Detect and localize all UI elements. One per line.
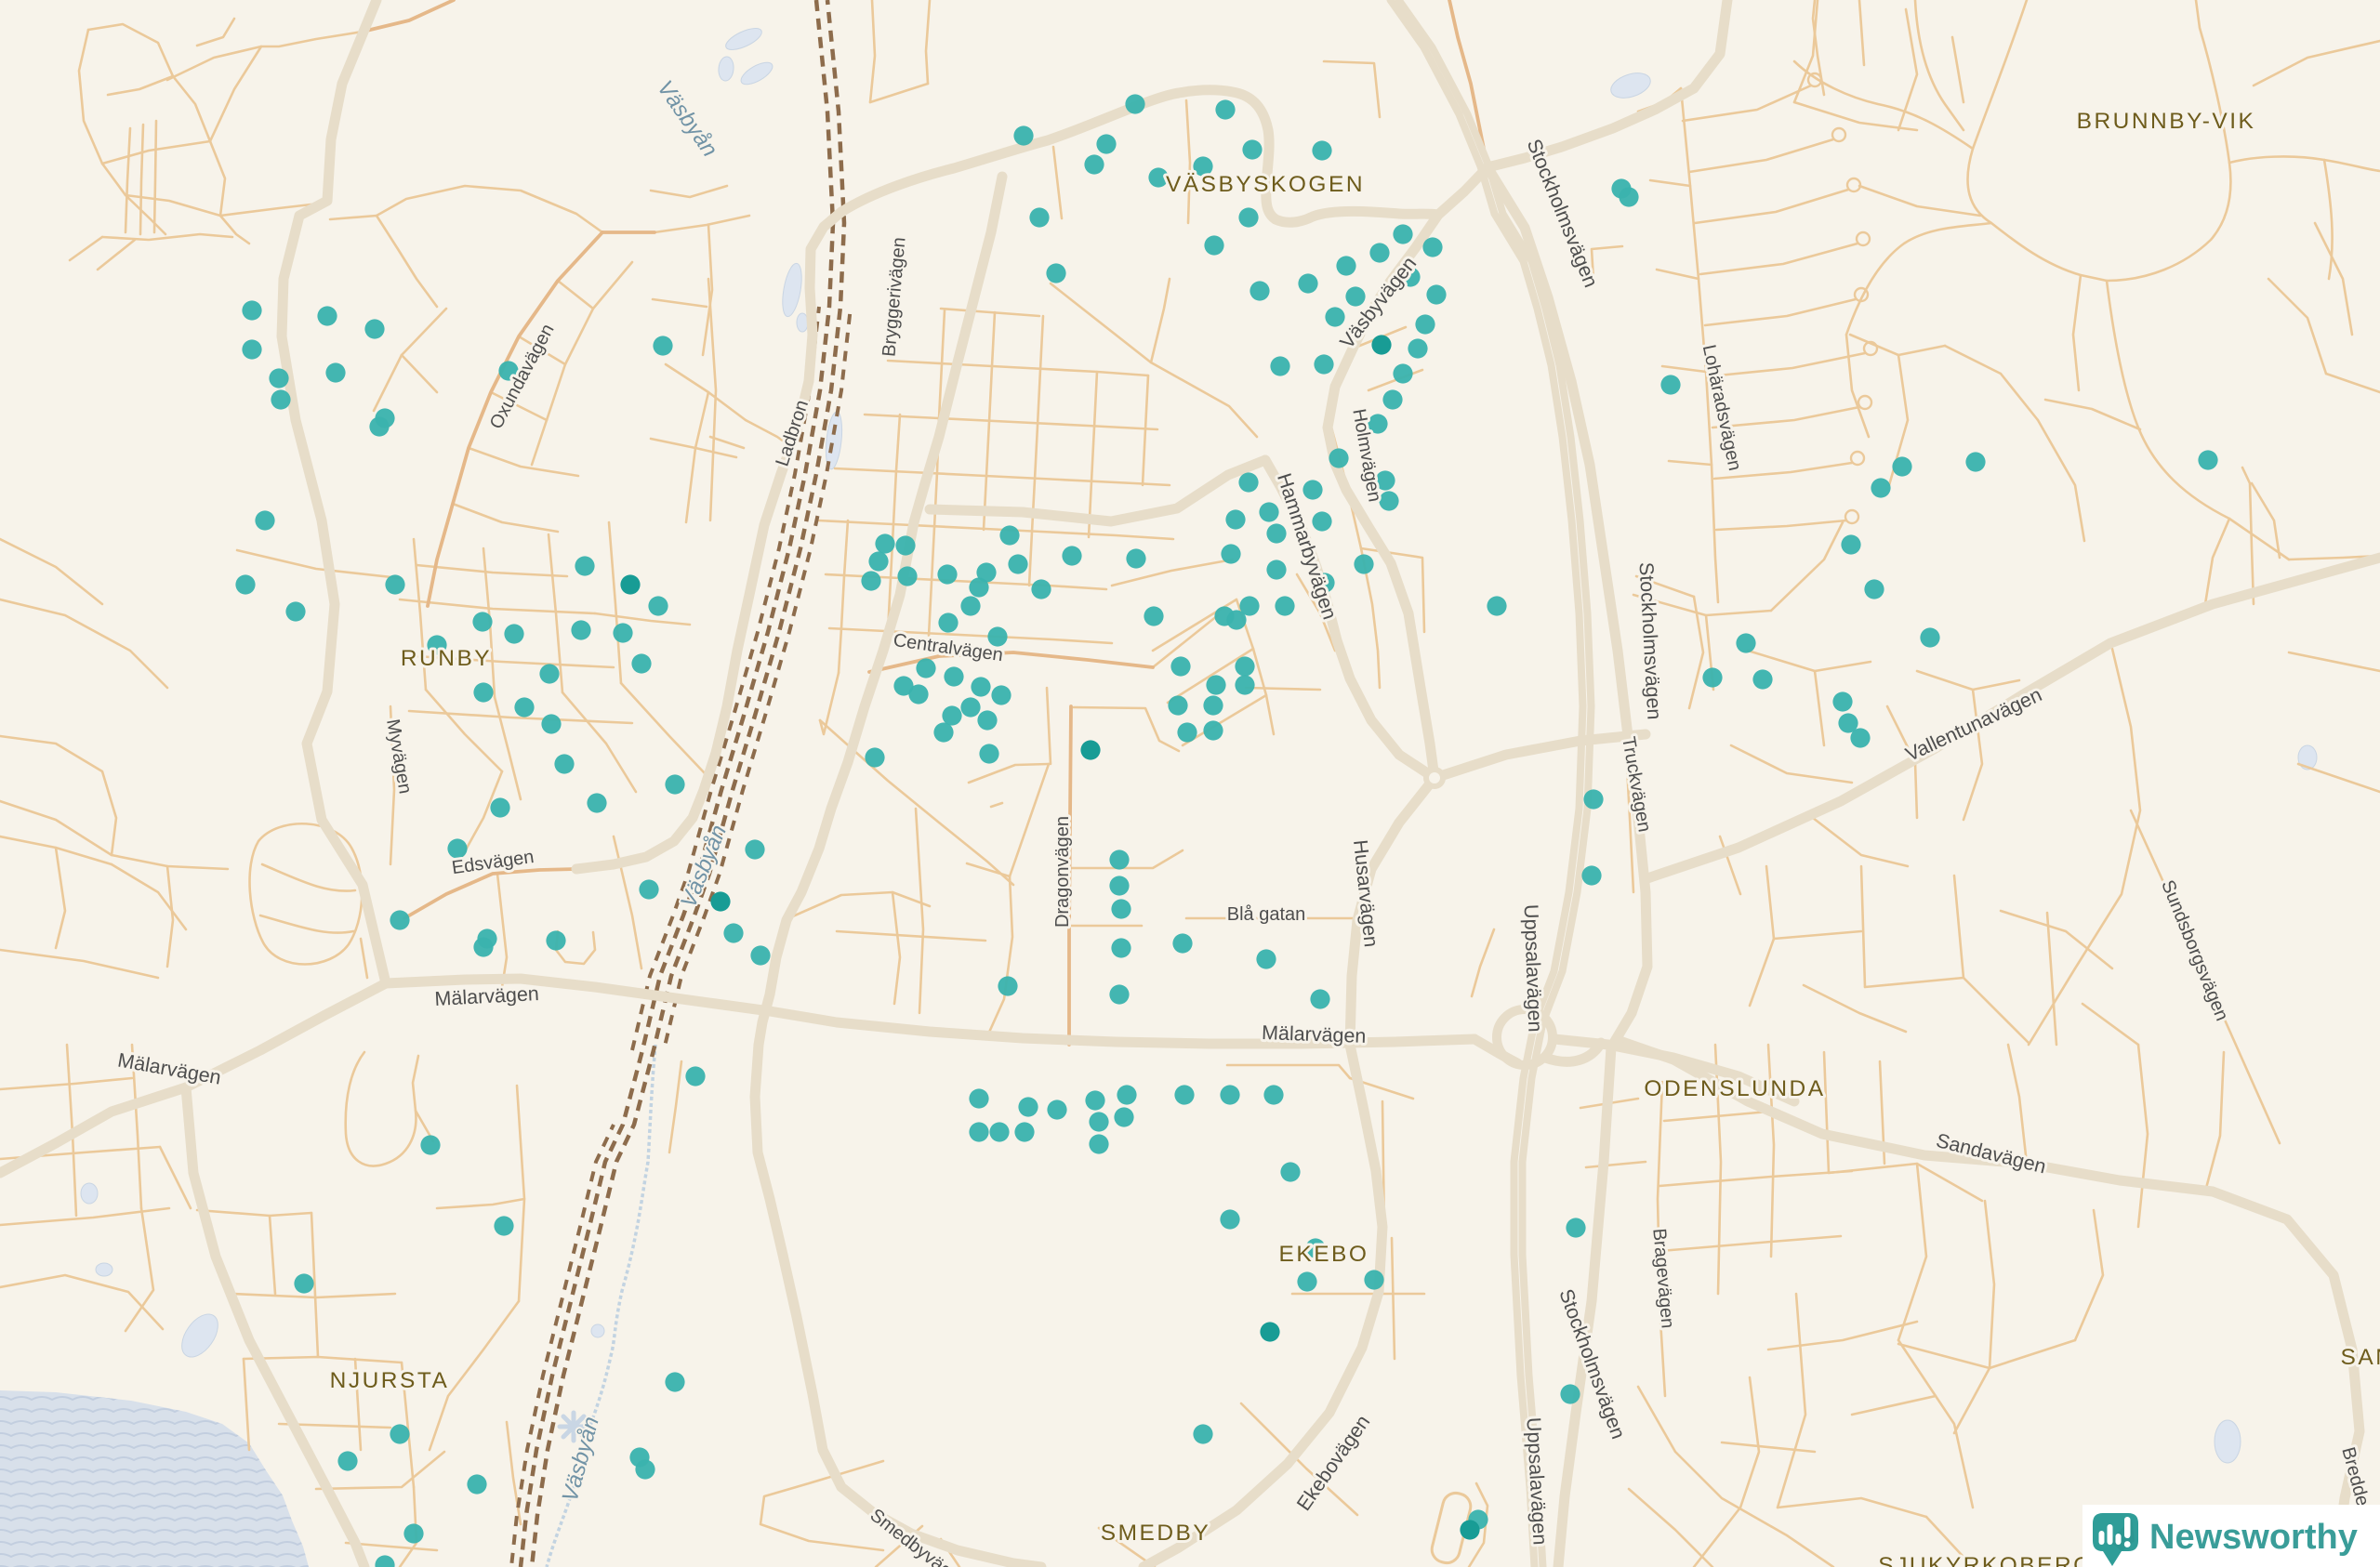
- svg-text:Uppsalavägen: Uppsalavägen: [1520, 904, 1547, 1033]
- svg-text:ODENSLUNDA: ODENSLUNDA: [1644, 1076, 1825, 1101]
- svg-text:Dragonvägen: Dragonvägen: [1052, 816, 1073, 928]
- svg-text:RUNBY: RUNBY: [401, 646, 492, 671]
- svg-text:VÄSBYSKOGEN: VÄSBYSKOGEN: [1166, 172, 1365, 197]
- svg-text:SMEDBY: SMEDBY: [1101, 1521, 1210, 1546]
- svg-text:NJURSTA: NJURSTA: [330, 1368, 450, 1393]
- svg-text:Newsworthy: Newsworthy: [2149, 1518, 2358, 1557]
- svg-text:Blå gatan: Blå gatan: [1227, 904, 1306, 925]
- svg-text:SJUKYRKOBERG: SJUKYRKOBERG: [1878, 1553, 2094, 1567]
- svg-text:SANDA: SANDA: [2341, 1345, 2380, 1370]
- svg-text:BRUNNBY-VIK: BRUNNBY-VIK: [2077, 109, 2256, 134]
- svg-text:EKEBO: EKEBO: [1279, 1242, 1369, 1267]
- svg-text:Mälarvägen: Mälarvägen: [1262, 1021, 1367, 1047]
